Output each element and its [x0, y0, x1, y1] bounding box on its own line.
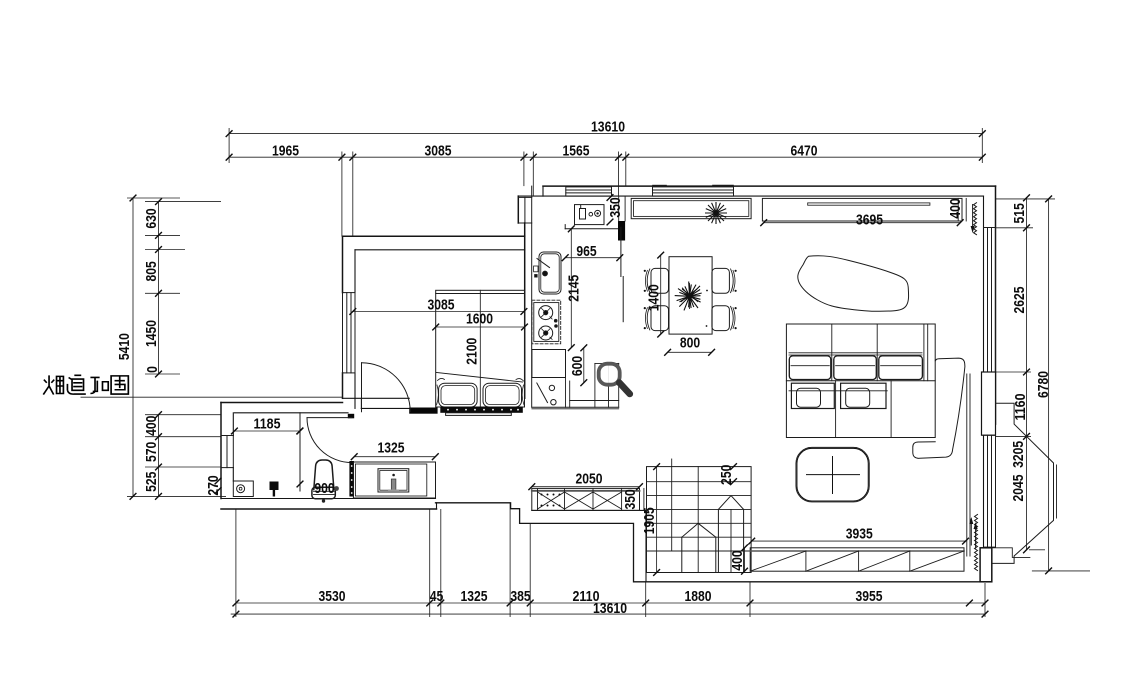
svg-text:400: 400 [729, 550, 746, 570]
svg-text:3530: 3530 [319, 588, 346, 605]
svg-text:965: 965 [576, 243, 596, 260]
svg-text:3695: 3695 [856, 212, 883, 229]
svg-text:400: 400 [947, 198, 964, 218]
svg-text:13610: 13610 [593, 600, 627, 617]
svg-text:350: 350 [607, 197, 624, 217]
svg-text:6470: 6470 [791, 142, 818, 159]
svg-text:1565: 1565 [563, 142, 590, 159]
svg-text:250: 250 [718, 465, 735, 485]
svg-text:3955: 3955 [856, 588, 883, 605]
svg-text:3205: 3205 [1010, 441, 1027, 468]
svg-text:1905: 1905 [641, 507, 658, 534]
svg-text:3935: 3935 [846, 526, 873, 543]
svg-text:570: 570 [143, 442, 160, 462]
svg-text:2145: 2145 [565, 275, 582, 302]
svg-text:5410: 5410 [116, 333, 133, 360]
svg-text:630: 630 [143, 208, 160, 228]
svg-text:3085: 3085 [425, 142, 452, 159]
svg-text:385: 385 [510, 588, 530, 605]
svg-text:400: 400 [143, 416, 160, 436]
svg-text:900: 900 [314, 480, 334, 497]
svg-text:0: 0 [144, 366, 161, 373]
svg-text:525: 525 [143, 472, 160, 492]
svg-text:45: 45 [430, 588, 444, 605]
svg-text:1450: 1450 [143, 320, 160, 347]
svg-text:1325: 1325 [461, 588, 488, 605]
svg-text:3085: 3085 [428, 297, 455, 314]
svg-text:1400: 1400 [645, 284, 662, 311]
svg-text:600: 600 [569, 356, 586, 376]
svg-text:2045: 2045 [1010, 475, 1027, 502]
svg-text:1185: 1185 [254, 416, 281, 433]
svg-text:1880: 1880 [685, 588, 712, 605]
svg-text:1325: 1325 [378, 440, 405, 457]
svg-text:800: 800 [680, 335, 700, 352]
svg-text:1965: 1965 [272, 142, 299, 159]
svg-text:2625: 2625 [1011, 287, 1028, 314]
svg-text:350: 350 [622, 489, 639, 509]
svg-text:515: 515 [1011, 203, 1028, 223]
svg-text:13610: 13610 [591, 118, 625, 135]
svg-text:805: 805 [143, 261, 160, 281]
svg-text:6780: 6780 [1035, 371, 1052, 398]
svg-text:1600: 1600 [466, 311, 493, 328]
svg-text:2100: 2100 [463, 338, 480, 365]
svg-text:270: 270 [205, 475, 222, 495]
svg-text:2050: 2050 [576, 471, 603, 488]
